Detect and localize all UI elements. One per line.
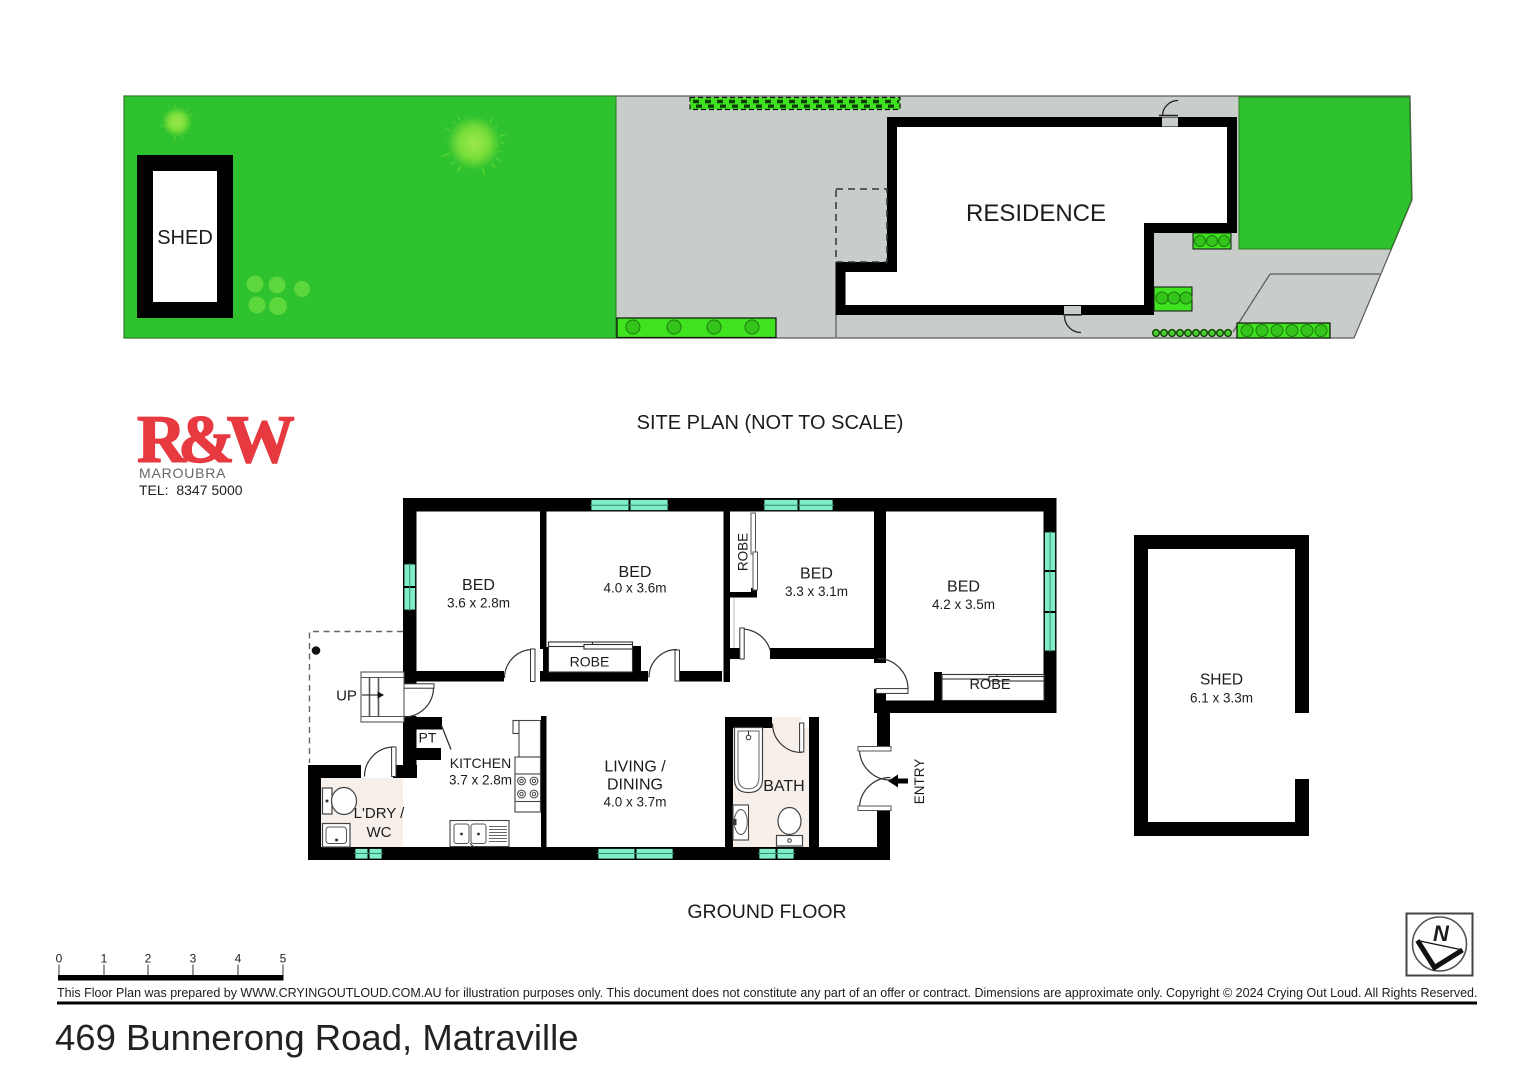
svg-text:4.0 x 3.7m: 4.0 x 3.7m <box>603 795 666 810</box>
svg-text:3.3 x 3.1m: 3.3 x 3.1m <box>785 584 848 599</box>
svg-text:RESIDENCE: RESIDENCE <box>966 200 1106 227</box>
svg-text:BATH: BATH <box>763 778 804 795</box>
svg-text:2: 2 <box>145 952 152 966</box>
svg-text:4: 4 <box>235 952 242 966</box>
svg-text:BED: BED <box>619 564 652 581</box>
svg-text:3.7 x 2.8m: 3.7 x 2.8m <box>449 773 512 788</box>
svg-text:BED: BED <box>800 566 833 583</box>
svg-text:0: 0 <box>56 952 63 966</box>
svg-text:4.2 x 3.5m: 4.2 x 3.5m <box>932 597 995 612</box>
svg-text:UP: UP <box>336 688 357 705</box>
svg-text:ROBE: ROBE <box>736 533 751 571</box>
svg-text:SHED: SHED <box>1200 672 1243 689</box>
svg-text:This Floor Plan was prepared b: This Floor Plan was prepared by WWW.CRYI… <box>57 986 1477 1000</box>
svg-text:4.0 x 3.6m: 4.0 x 3.6m <box>603 581 666 596</box>
svg-text:5: 5 <box>280 952 287 966</box>
svg-text:L'DRY /: L'DRY / <box>354 805 406 822</box>
svg-text:469 Bunnerong Road, Matraville: 469 Bunnerong Road, Matraville <box>55 1017 579 1058</box>
svg-text:BED: BED <box>947 579 980 596</box>
svg-text:KITCHEN: KITCHEN <box>450 755 511 771</box>
svg-text:BED: BED <box>462 577 495 594</box>
svg-text:WC: WC <box>367 824 392 841</box>
svg-text:MAROUBRA: MAROUBRA <box>139 465 226 481</box>
svg-text:DINING: DINING <box>607 777 663 794</box>
svg-text:1: 1 <box>101 952 108 966</box>
svg-text:N: N <box>1433 921 1450 946</box>
svg-text:TEL: 8347 5000: TEL: 8347 5000 <box>139 482 243 498</box>
svg-text:3.6 x 2.8m: 3.6 x 2.8m <box>447 596 510 611</box>
svg-text:SITE PLAN (NOT TO SCALE): SITE PLAN (NOT TO SCALE) <box>637 412 904 434</box>
svg-text:ENTRY: ENTRY <box>912 759 927 805</box>
svg-text:SHED: SHED <box>157 227 213 249</box>
svg-text:LIVING /: LIVING / <box>604 759 666 776</box>
svg-text:PT: PT <box>419 730 437 746</box>
svg-text:ROBE: ROBE <box>570 654 610 670</box>
svg-text:GROUND FLOOR: GROUND FLOOR <box>687 901 846 923</box>
svg-text:3: 3 <box>190 952 197 966</box>
svg-text:ROBE: ROBE <box>969 677 1010 693</box>
svg-text:6.1 x 3.3m: 6.1 x 3.3m <box>1190 691 1253 706</box>
